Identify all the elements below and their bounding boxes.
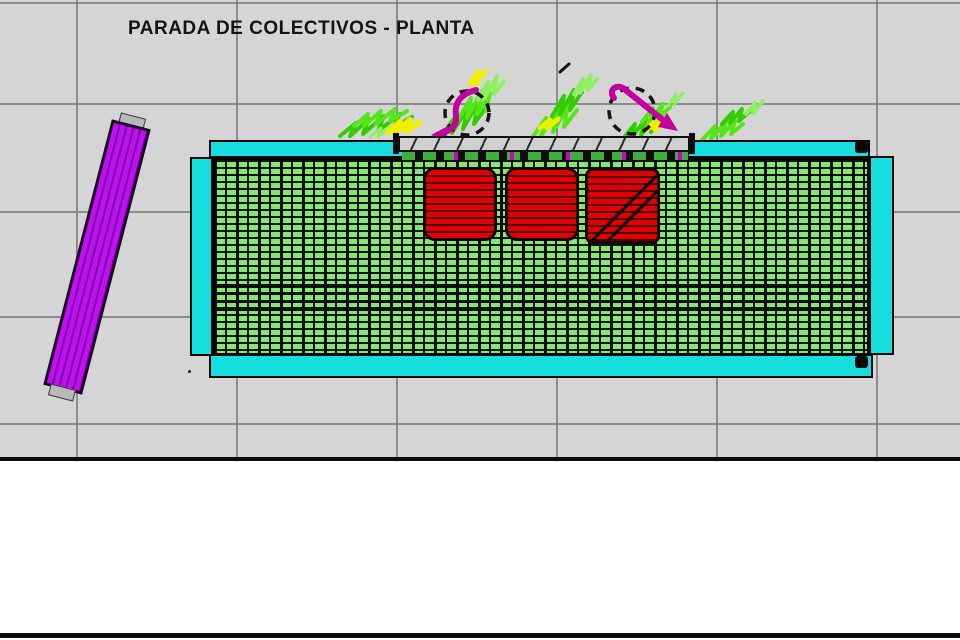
vegetation-cluster (340, 64, 763, 140)
corner-fixing-bottom (855, 356, 868, 368)
vegetation-and-symbols (330, 58, 790, 146)
reference-point-dot (188, 370, 191, 373)
roof-joint-lines (214, 284, 867, 312)
shelter-right-end-panel (869, 156, 894, 355)
seat-diagonal-brace (586, 171, 660, 244)
corner-fixing-top (855, 141, 868, 153)
grid-line-horizontal (0, 2, 960, 4)
drawing-area-bottom-border (0, 457, 960, 461)
seat-3 (585, 168, 660, 244)
rail-fixing-strip (402, 152, 689, 160)
cad-plan-sheet: PARADA DE COLECTIVOS - PLANTA (0, 0, 960, 640)
page-bottom-rule (0, 633, 960, 638)
access-ramp (39, 110, 155, 404)
seat-2 (505, 167, 579, 241)
shelter-left-end-panel (190, 157, 213, 356)
ramp-body (43, 119, 150, 394)
drawing-area: PARADA DE COLECTIVOS - PLANTA (0, 0, 960, 457)
drawing-title: PARADA DE COLECTIVOS - PLANTA (128, 18, 475, 40)
grid-line-horizontal (0, 423, 960, 425)
hatched-bench-rail (398, 136, 690, 152)
seat-diagonal-brace (594, 179, 660, 244)
seat-1 (423, 167, 497, 241)
shelter-bottom-edge-beam (209, 354, 873, 378)
